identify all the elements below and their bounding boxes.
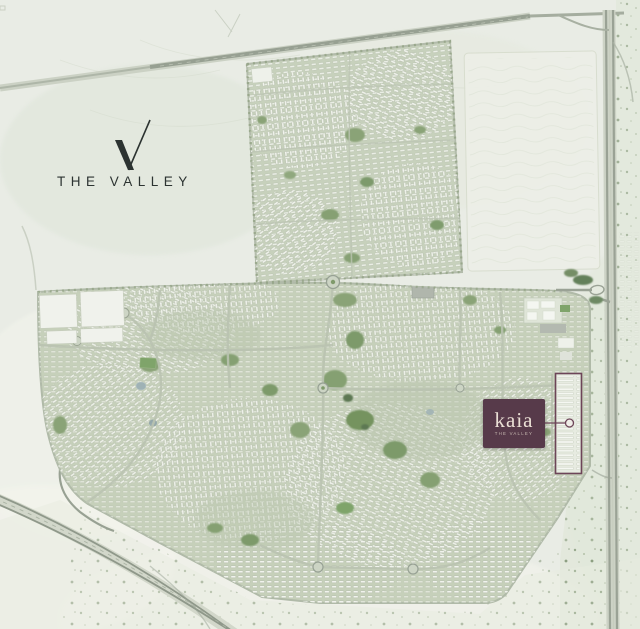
masterplan-viewport: THE VALLEY kaia THE VALLEY <box>0 0 640 629</box>
vacant-parcel <box>464 51 600 271</box>
kaia-location-marker[interactable] <box>566 419 574 427</box>
north-district <box>240 36 470 288</box>
kaia-badge-title: kaia <box>495 410 534 430</box>
kaia-badge-subtitle: THE VALLEY <box>495 432 533 436</box>
masterplan-map <box>0 0 640 629</box>
main-roundabout <box>327 276 340 289</box>
kaia-badge[interactable]: kaia THE VALLEY <box>483 399 545 448</box>
vacant-plots <box>39 290 125 344</box>
